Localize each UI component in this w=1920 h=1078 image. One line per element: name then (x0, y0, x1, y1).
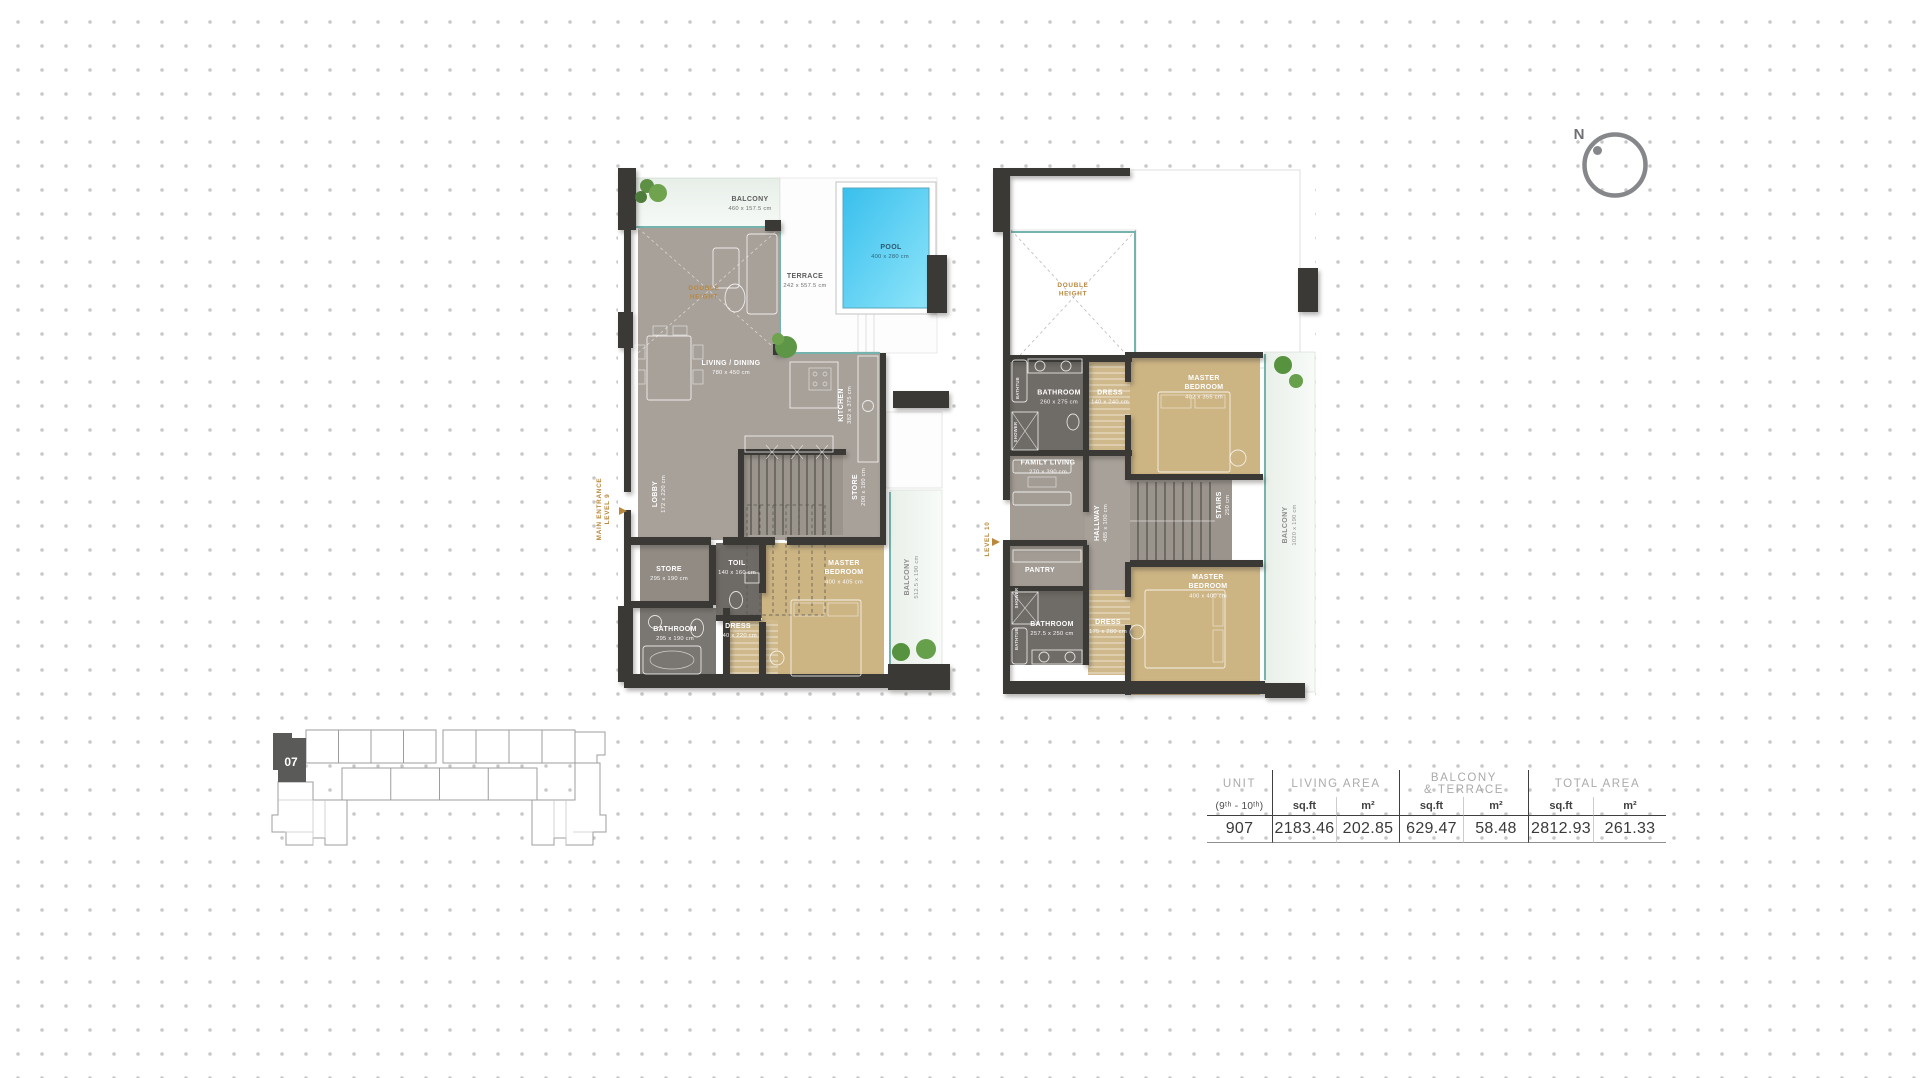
stairs (743, 455, 843, 535)
bathroom-label: BATHROOM (653, 626, 697, 633)
balcony-terrace-title-line2: & TERRACE (1424, 784, 1504, 796)
living-dining-dims: 780 x 450 cm (712, 370, 750, 376)
master-top-label-1: MASTER (1188, 375, 1220, 382)
living-area-title: LIVING AREA (1272, 770, 1399, 797)
hallway-dims: 485 x 100 cm (1103, 504, 1109, 542)
dress-top-dims: 140 x 240 cm (1091, 400, 1129, 406)
store-room (640, 545, 712, 605)
bathroom-room (640, 608, 716, 680)
master-bottom-label-2: BEDROOM (1188, 583, 1227, 590)
lobby-dims: 172 x 220 cm (661, 475, 667, 513)
total-m2-value: 261.33 (1593, 816, 1666, 843)
store-dims: 295 x 190 cm (650, 576, 688, 582)
master-top-room (1130, 352, 1260, 480)
compass: N (1565, 115, 1665, 215)
kitchen-dims: 382 x 375 cm (847, 386, 853, 424)
unit-floors-subtitle: (9ᵗʰ - 10ᵗʰ) (1207, 797, 1272, 816)
dress-bottom-dims: 175 x 280 cm (1089, 629, 1127, 635)
toilet-dims: 140 x 160 cm (718, 570, 756, 576)
shower-bottom-label: SHOWER (1014, 588, 1019, 609)
floor-plan-level-10: DOUBLE HEIGHT BATHROOM 260 x 275 cm BATH… (980, 160, 1325, 705)
bathroom-bottom-dims: 257.5 x 250 cm (1030, 631, 1073, 637)
bathroom-top-dims: 260 x 275 cm (1040, 400, 1078, 406)
living-m2-header: m² (1336, 797, 1399, 816)
living-m2-value: 202.85 (1336, 816, 1399, 843)
shower-label: SHOWER (1013, 422, 1018, 443)
double-height-label-2: HEIGHT (1059, 291, 1087, 298)
living-dining-label: LIVING / DINING (702, 360, 761, 367)
hallway-label: HALLWAY (1094, 505, 1101, 541)
bathtub-bottom-label: BATHTUB (1014, 628, 1019, 650)
master-bedroom-label-1: MASTER (828, 560, 860, 567)
dress-label: DRESS (725, 623, 751, 630)
total-area-title: TOTAL AREA (1528, 770, 1666, 797)
balcony-sqft-header: sq.ft (1399, 797, 1463, 816)
dress-top-label: DRESS (1097, 390, 1123, 397)
unit-07-label: 07 (284, 755, 298, 769)
double-height-label-2: HEIGHT (690, 294, 718, 301)
level-9-label: LEVEL 9 (604, 494, 611, 525)
balcony-top-dims: 460 x 157.5 cm (728, 206, 771, 212)
shaft (886, 412, 942, 488)
floor-plan-level-9: BALCONY 460 x 157.5 cm POOL 400 x 280 cm… (595, 160, 960, 695)
balcony-terrace-title-line1: BALCONY (1431, 772, 1497, 784)
bathroom-top-label: BATHROOM (1037, 390, 1081, 397)
dress-dims: 140 x 220 cm (719, 633, 757, 639)
balcony-m2-value: 58.48 (1463, 816, 1528, 843)
lobby-label: LOBBY (652, 481, 659, 507)
store-upper-label: STORE (852, 474, 859, 500)
balcony-sqft-value: 629.47 (1399, 816, 1463, 843)
family-living-dims: 270 x 390 cm (1029, 470, 1067, 476)
master-bottom-label-1: MASTER (1192, 574, 1224, 581)
page: BALCONY 460 x 157.5 cm POOL 400 x 280 cm… (0, 0, 1920, 1078)
area-table: UNIT LIVING AREA BALCONY & TERRACE TOTAL… (1207, 770, 1667, 843)
balcony-side-label: BALCONY (904, 558, 911, 595)
dress-bottom-label: DRESS (1095, 619, 1121, 626)
total-sqft-header: sq.ft (1528, 797, 1593, 816)
balcony-side-dims: 1020 x 190 cm (1292, 504, 1298, 545)
master-bedroom-dims: 400 x 405 cm (825, 580, 863, 586)
store-label: STORE (656, 566, 682, 573)
master-top-dims: 402 x 355 cm (1185, 395, 1223, 401)
stairs-label: STAIRS (1216, 491, 1223, 518)
compass-north-label: N (1574, 126, 1585, 143)
unit-column-title: UNIT (1207, 770, 1272, 797)
master-bedroom (762, 543, 884, 682)
living-sqft-header: sq.ft (1272, 797, 1336, 816)
living-sqft-value: 2183.46 (1272, 816, 1336, 843)
terrace-label: TERRACE (787, 273, 823, 280)
balcony-side-label: BALCONY (1282, 506, 1289, 543)
keyplan: 07 (265, 720, 615, 855)
stairs-dims: 250 cm (1225, 495, 1231, 516)
main-entrance-label: MAIN ENTRANCE (596, 478, 603, 541)
total-m2-header: m² (1593, 797, 1666, 816)
toilet-label: TOIL (728, 560, 746, 567)
balcony-side-dims: 512.5 x 190 cm (914, 555, 920, 598)
toilet-room (716, 543, 762, 618)
compass-circle-icon (1585, 135, 1646, 196)
pool-dims: 400 x 280 cm (871, 254, 909, 260)
unit-number-value: 907 (1207, 816, 1272, 843)
family-living-label: FAMILY LIVING (1021, 460, 1076, 467)
master-top-label-2: BEDROOM (1184, 384, 1223, 391)
total-sqft-value: 2812.93 (1528, 816, 1593, 843)
balcony-terrace-title: BALCONY & TERRACE (1399, 770, 1528, 797)
bathroom-bottom-label: BATHROOM (1030, 621, 1074, 628)
level-10-label: LEVEL 10 (984, 522, 991, 557)
compass-dot-icon (1593, 146, 1602, 155)
double-height-label-1: DOUBLE (1057, 282, 1088, 289)
master-bedroom-label-2: BEDROOM (824, 569, 863, 576)
kitchen-label: KITCHEN (838, 388, 845, 422)
pool-label: POOL (880, 244, 902, 251)
bathtub-label: BATHTUB (1015, 377, 1020, 399)
building-outline (272, 730, 606, 845)
balcony-side-strip (1265, 352, 1315, 692)
terrace-dims: 242 x 557.5 cm (783, 283, 826, 289)
balcony-top-label: BALCONY (731, 196, 768, 203)
pantry-label: PANTRY (1025, 567, 1055, 574)
master-bottom-room (1130, 562, 1260, 695)
bathroom-dims: 295 x 190 cm (656, 636, 694, 642)
master-bottom-dims: 400 x 400 cm (1189, 594, 1227, 600)
store-upper-dims: 200 x 180 cm (861, 468, 867, 506)
balcony-m2-header: m² (1463, 797, 1528, 816)
double-height-label-1: DOUBLE (688, 285, 719, 292)
